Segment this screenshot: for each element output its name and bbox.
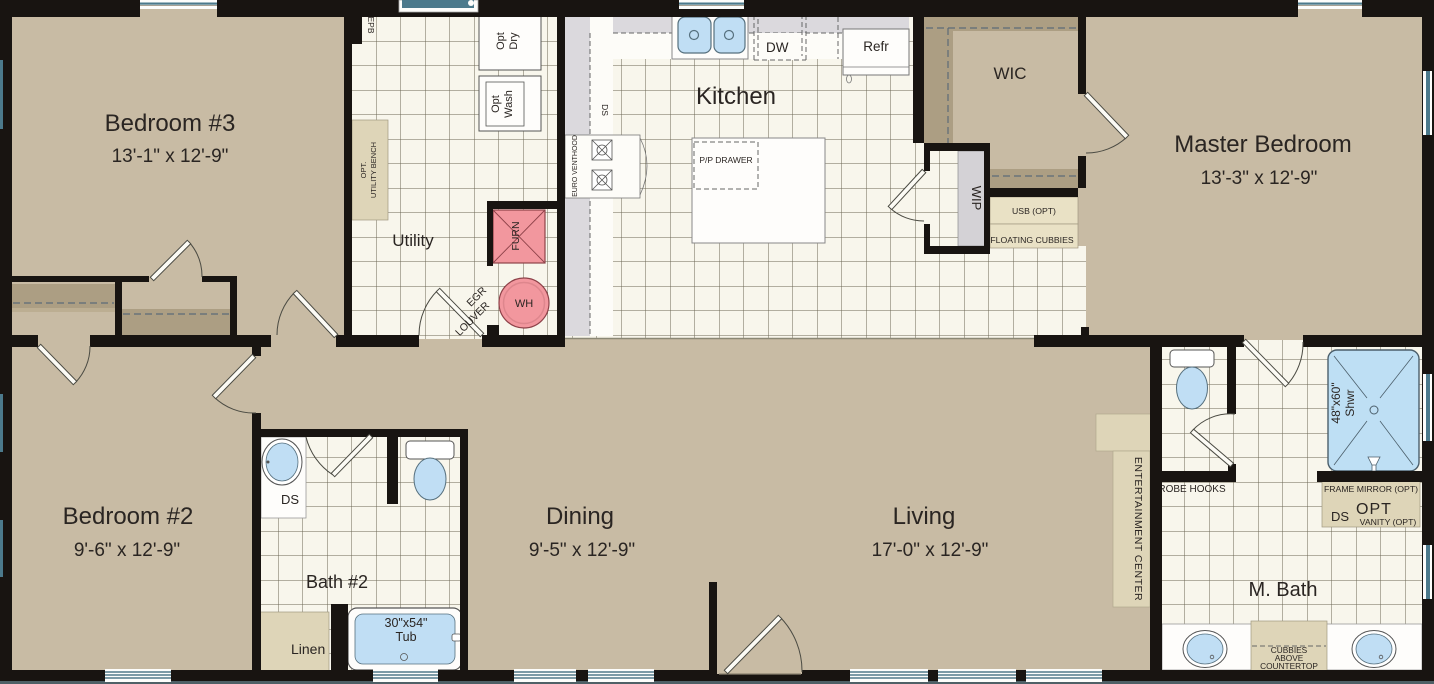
svg-text:13'-3" x 12'-9": 13'-3" x 12'-9" bbox=[1201, 168, 1318, 189]
svg-text:VANITY (OPT): VANITY (OPT) bbox=[1360, 517, 1417, 527]
svg-text:FURN: FURN bbox=[510, 221, 522, 250]
svg-text:DS: DS bbox=[281, 492, 299, 507]
svg-text:Dining: Dining bbox=[546, 503, 614, 530]
svg-text:30"x54": 30"x54" bbox=[385, 616, 428, 630]
svg-text:Refr: Refr bbox=[863, 39, 889, 54]
svg-text:FLOATING CUBBIES: FLOATING CUBBIES bbox=[990, 235, 1074, 245]
svg-text:13'-1" x 12'-9": 13'-1" x 12'-9" bbox=[112, 146, 229, 167]
svg-text:Wash: Wash bbox=[503, 90, 515, 118]
svg-text:9'-5" x 12'-9": 9'-5" x 12'-9" bbox=[529, 540, 635, 561]
svg-text:Living: Living bbox=[893, 503, 956, 530]
svg-text:P/P DRAWER: P/P DRAWER bbox=[699, 155, 752, 165]
svg-text:Bath #2: Bath #2 bbox=[306, 572, 368, 592]
svg-text:ROBE HOOKS: ROBE HOOKS bbox=[1158, 484, 1226, 495]
svg-text:USB (OPT): USB (OPT) bbox=[1012, 206, 1056, 216]
svg-text:DS: DS bbox=[1331, 509, 1349, 524]
svg-text:COUNTERTOP: COUNTERTOP bbox=[1260, 661, 1318, 671]
svg-text:Utility: Utility bbox=[392, 231, 434, 250]
svg-text:WIC: WIC bbox=[993, 64, 1026, 83]
svg-text:Bedroom #2: Bedroom #2 bbox=[63, 503, 194, 530]
svg-text:Dry: Dry bbox=[508, 32, 520, 50]
svg-text:WH: WH bbox=[515, 298, 533, 310]
svg-text:Linen: Linen bbox=[291, 641, 325, 657]
svg-text:EURO VENTHOOD: EURO VENTHOOD bbox=[572, 135, 579, 197]
svg-text:9'-6" x 12'-9": 9'-6" x 12'-9" bbox=[74, 540, 180, 561]
svg-text:Opt: Opt bbox=[495, 32, 507, 50]
svg-text:Bedroom #3: Bedroom #3 bbox=[105, 110, 236, 137]
svg-text:Kitchen: Kitchen bbox=[696, 83, 776, 110]
svg-text:DS: DS bbox=[600, 104, 610, 116]
svg-text:UTILITY BENCH: UTILITY BENCH bbox=[369, 142, 378, 198]
svg-text:FRAME MIRROR (OPT): FRAME MIRROR (OPT) bbox=[1324, 484, 1418, 494]
svg-text:17'-0" x 12'-9": 17'-0" x 12'-9" bbox=[872, 540, 989, 561]
svg-text:Master Bedroom: Master Bedroom bbox=[1174, 131, 1351, 158]
svg-text:ENTERTAINMENT CENTER: ENTERTAINMENT CENTER bbox=[1132, 457, 1144, 601]
svg-text:Tub: Tub bbox=[395, 630, 416, 644]
svg-text:48"x60": 48"x60" bbox=[1329, 382, 1343, 423]
svg-text:DW: DW bbox=[766, 40, 789, 55]
svg-text:M. Bath: M. Bath bbox=[1249, 579, 1318, 601]
svg-text:OPT: OPT bbox=[1356, 501, 1392, 518]
svg-text:Shwr: Shwr bbox=[1343, 389, 1357, 416]
svg-text:Opt: Opt bbox=[490, 95, 502, 113]
svg-text:EPB: EPB bbox=[366, 16, 376, 33]
svg-text:OPT.: OPT. bbox=[359, 162, 368, 179]
svg-text:WIP: WIP bbox=[969, 186, 984, 211]
